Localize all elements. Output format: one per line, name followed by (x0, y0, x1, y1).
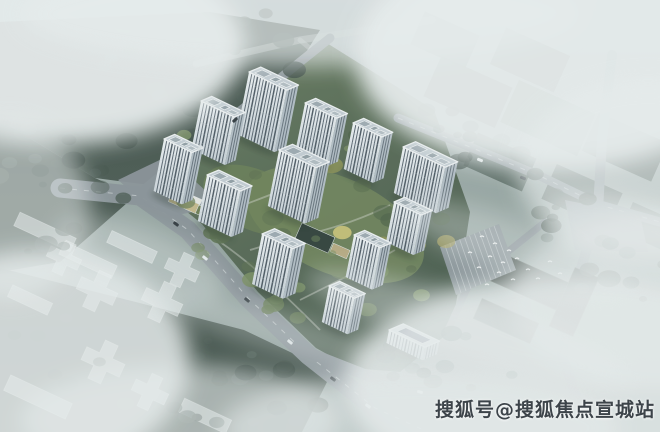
watermark-text: 搜狐号@搜狐焦点宣城站 (435, 395, 655, 422)
aerial-rendering-image: 搜狐号@搜狐焦点宣城站 (0, 0, 660, 432)
aerial-rendering-canvas (0, 0, 660, 432)
color-grade-overlay (0, 0, 660, 432)
